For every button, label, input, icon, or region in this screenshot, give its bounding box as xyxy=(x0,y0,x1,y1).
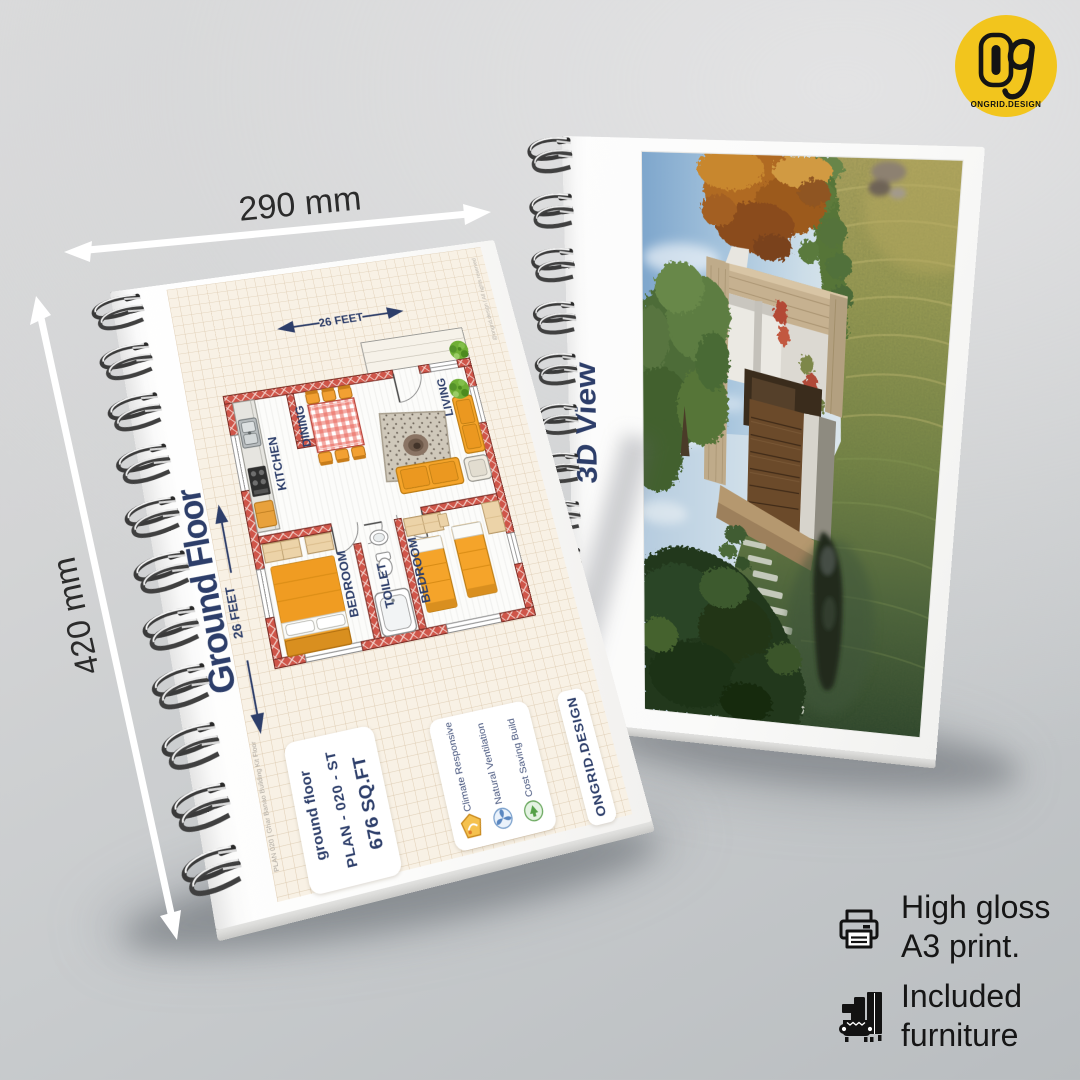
svg-text:ONGRID.DESIGN: ONGRID.DESIGN xyxy=(971,100,1042,109)
